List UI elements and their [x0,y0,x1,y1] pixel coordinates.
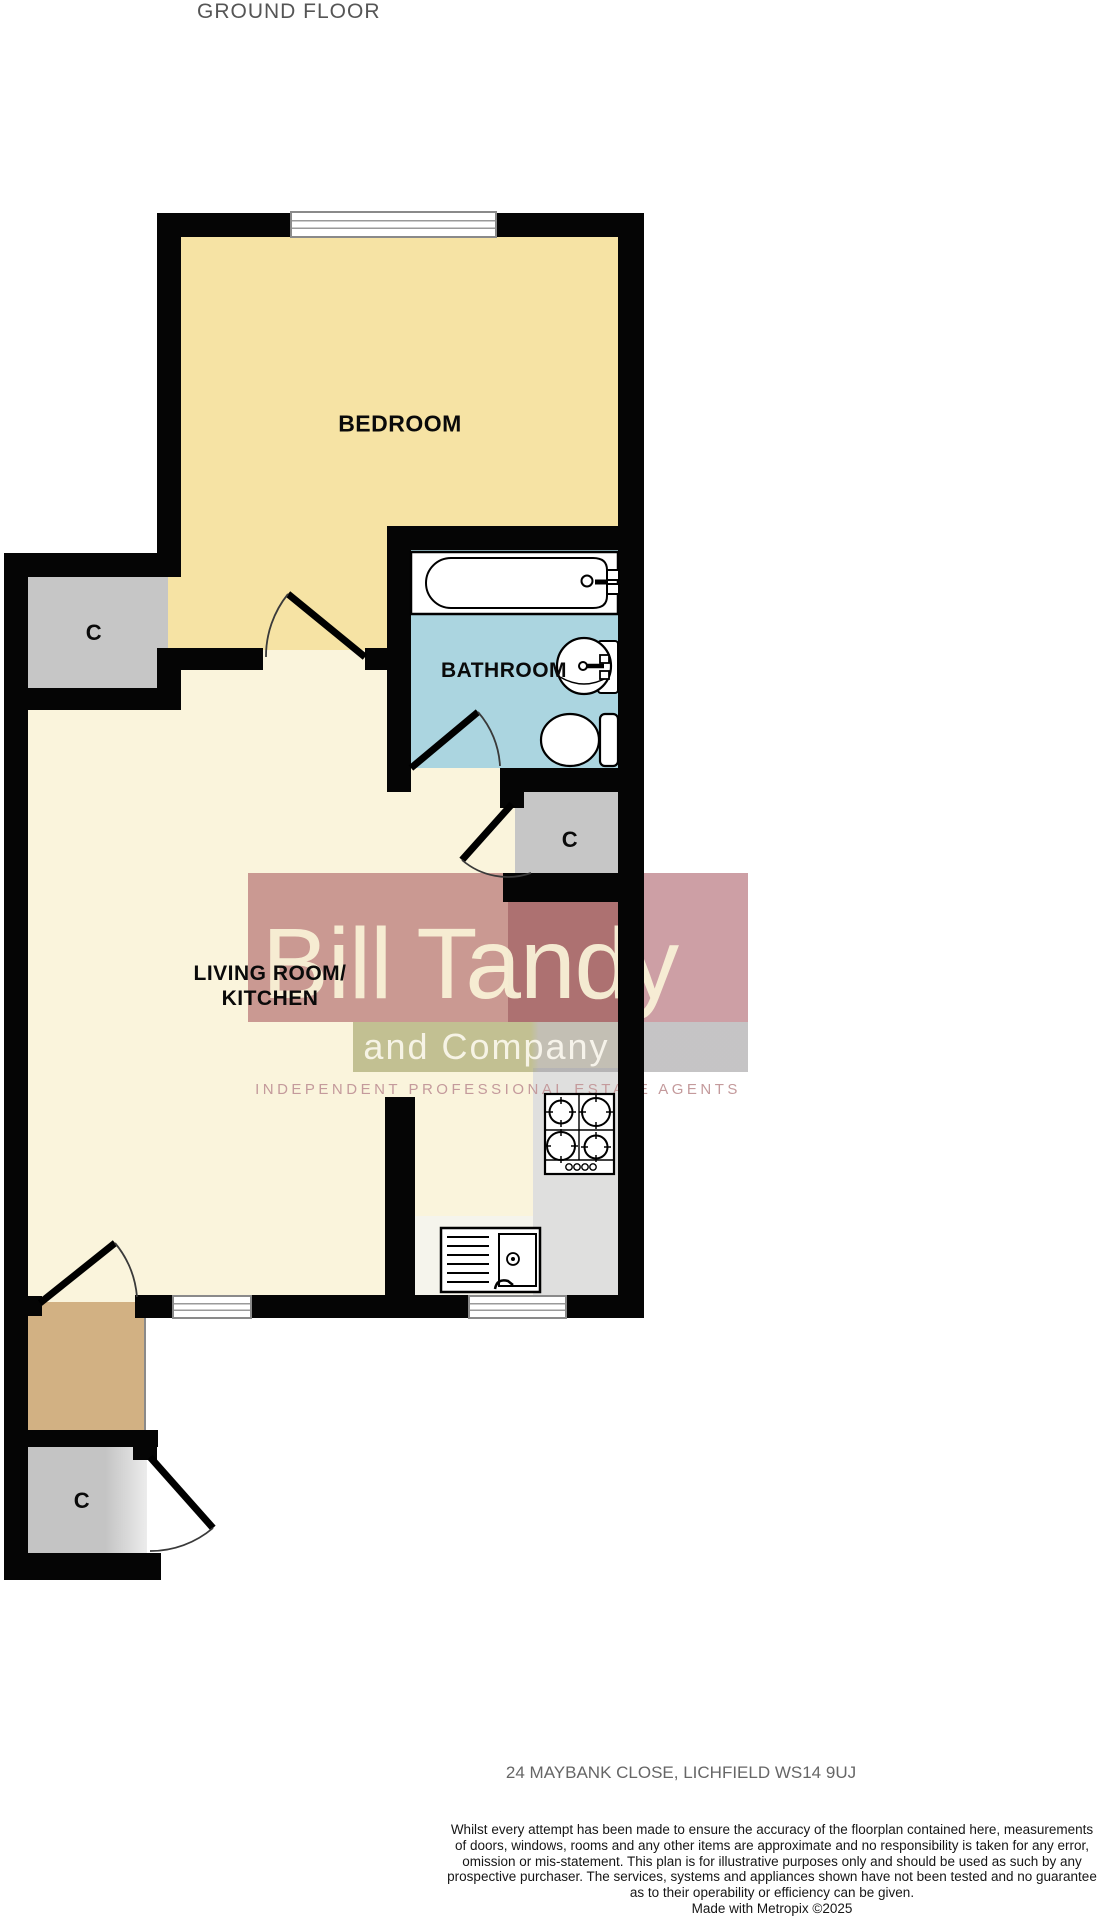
floorplan-canvas: Bill Tandy and Company INDEPENDENT PROFE… [0,0,1114,1928]
toilet-icon [541,714,618,766]
hob-icon [544,1094,614,1174]
label-closet-bottom: C [74,1488,90,1514]
label-living-line1: LIVING ROOM/ [194,962,347,985]
bathtub-icon [411,552,619,614]
label-living-kitchen: LIVING ROOM/ KITCHEN [194,961,347,1011]
door-closet-bottom [150,1457,213,1551]
door-bathroom [411,712,500,768]
door-closet-middle [462,804,531,877]
disclaimer-line: prospective purchaser. The services, sys… [422,1869,1114,1885]
disclaimer-line: as to their operability or efficiency ca… [422,1885,1114,1901]
kitchen-sink-icon [441,1228,540,1292]
metropix-credit: Made with Metropix ©2025 [422,1901,1114,1917]
disclaimer-text: Whilst every attempt has been made to en… [422,1822,1114,1917]
page-title: GROUND FLOOR [197,0,381,24]
label-bedroom: BEDROOM [338,411,462,438]
label-bathroom: BATHROOM [441,659,567,683]
property-address: 24 MAYBANK CLOSE, LICHFIELD WS14 9UJ [431,1763,931,1783]
door-bedroom [266,594,365,657]
label-closet-left: C [86,620,102,646]
label-closet-middle: C [562,827,578,853]
label-living-line2: KITCHEN [222,987,319,1010]
fixtures-layer [0,0,1114,1928]
disclaimer-line: Whilst every attempt has been made to en… [422,1822,1114,1838]
door-hall [40,1243,137,1303]
disclaimer-line: of doors, windows, rooms and any other i… [422,1838,1114,1854]
disclaimer-line: omission or mis-statement. This plan is … [422,1854,1114,1870]
